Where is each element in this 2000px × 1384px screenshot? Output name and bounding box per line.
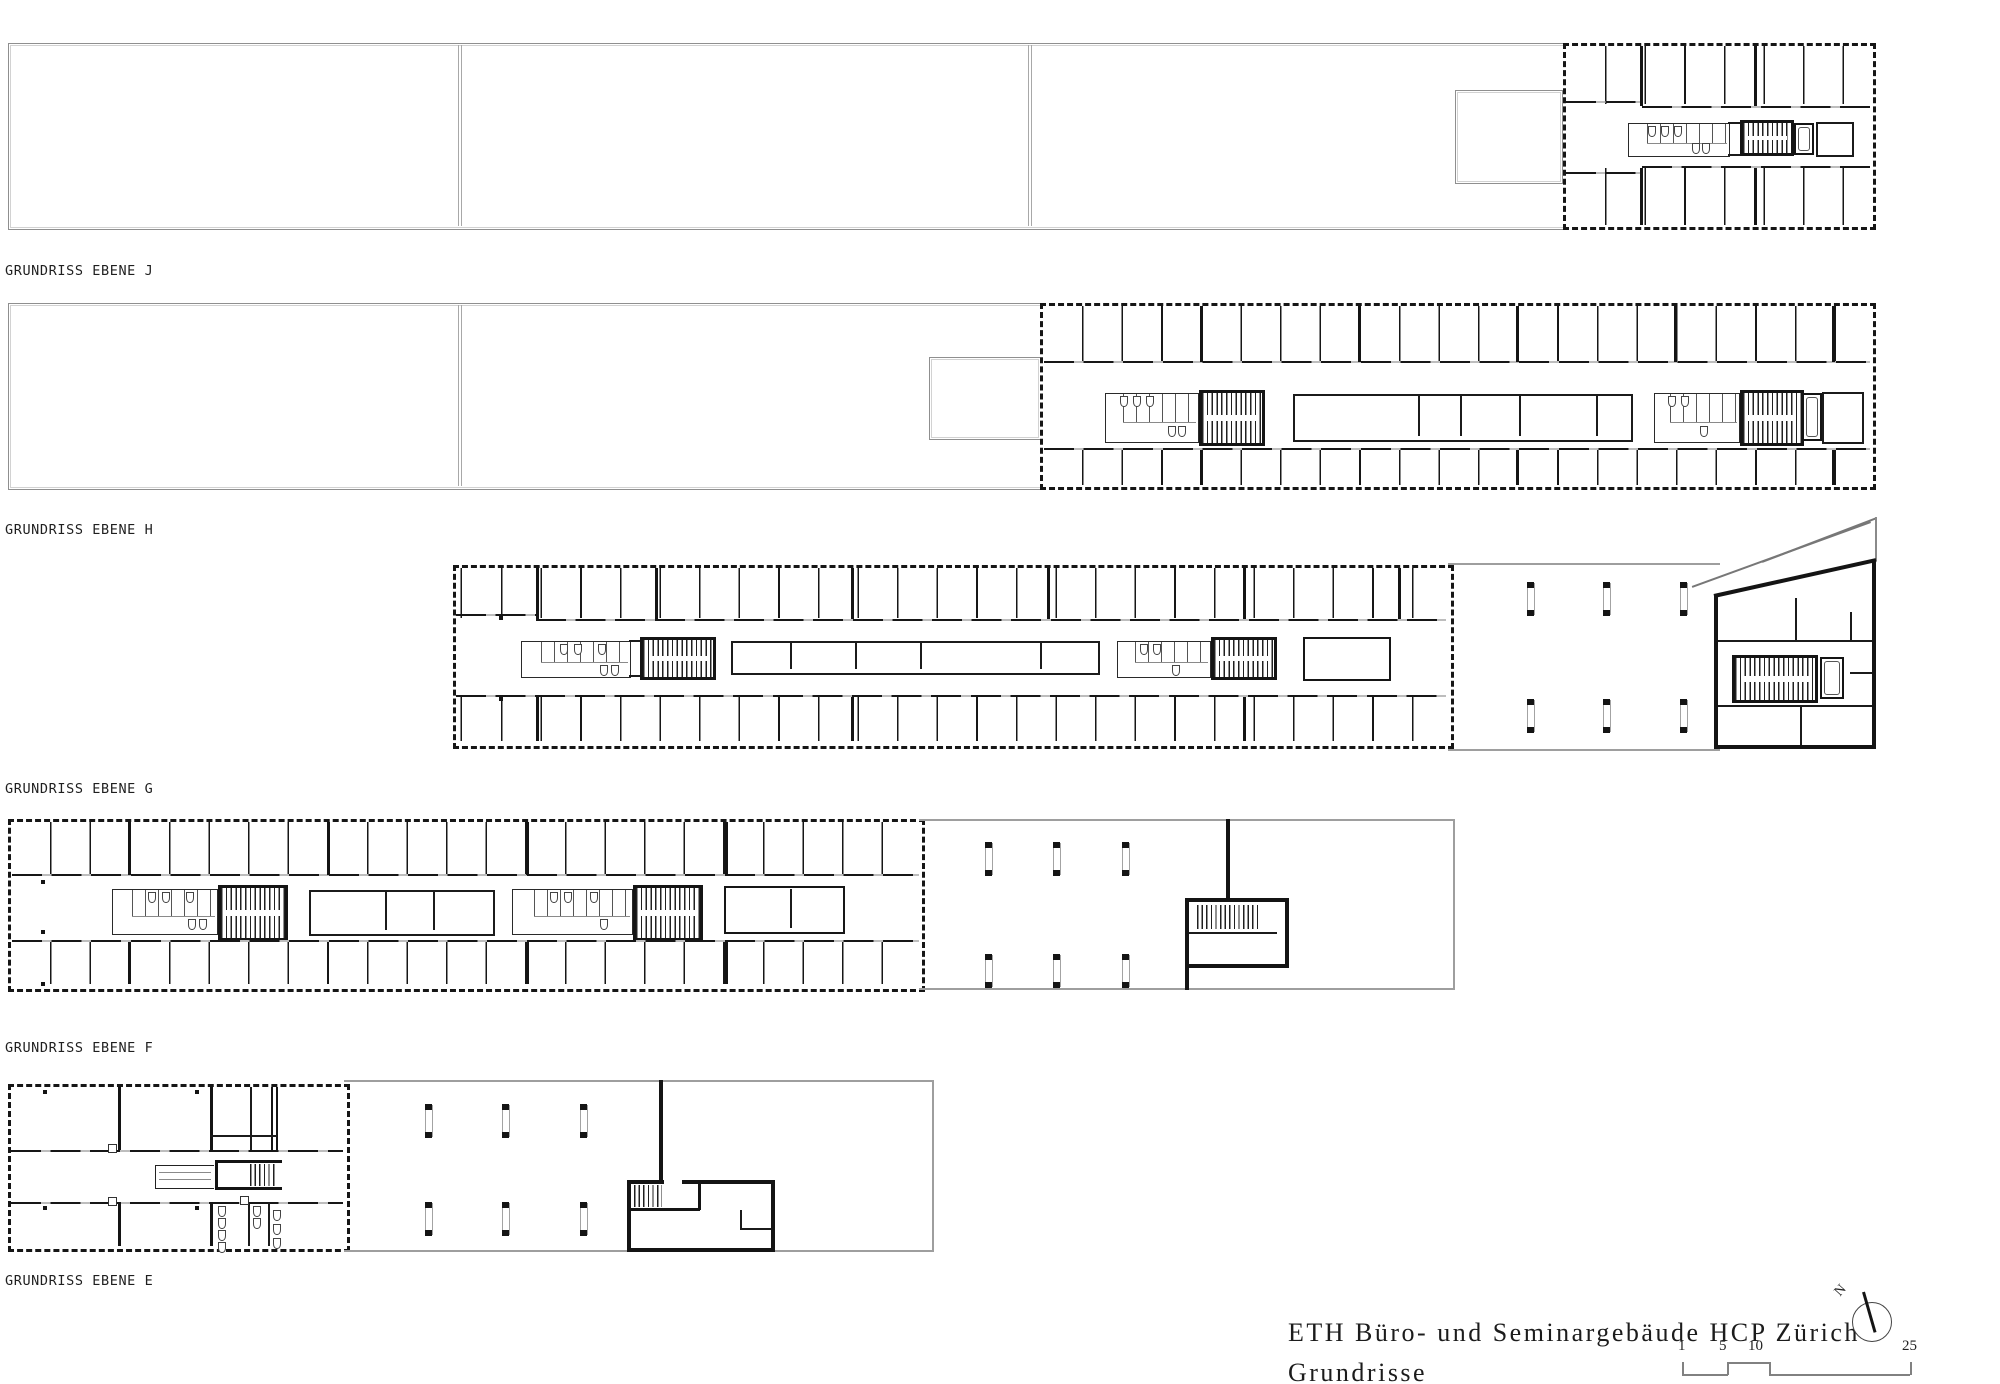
toilet-fixture xyxy=(1681,396,1689,407)
sink-fixture xyxy=(1168,426,1176,437)
wall-segment xyxy=(526,942,529,984)
partition-wall xyxy=(248,1202,250,1246)
partition-wall xyxy=(1596,396,1598,436)
wc-stalls xyxy=(541,642,627,663)
outline-notch xyxy=(929,357,1041,440)
wc-core xyxy=(1117,641,1211,678)
head-block-bottom-wall xyxy=(1714,745,1876,749)
wall-segment xyxy=(118,1087,121,1150)
core-wall xyxy=(627,1180,775,1184)
core-stem-wall xyxy=(1185,958,1189,990)
column-dot xyxy=(41,880,45,884)
wall-segment xyxy=(1832,450,1835,485)
plan-label: GRUNDRISS EBENE F xyxy=(5,1040,153,1056)
sink-fixture xyxy=(1692,143,1700,154)
head-block-wall xyxy=(1718,705,1872,707)
core-wall xyxy=(698,1184,701,1210)
partition-wall xyxy=(1460,396,1462,436)
wall-segment xyxy=(526,822,529,875)
column-dot xyxy=(41,930,45,934)
column-tick xyxy=(425,1203,433,1235)
head-block-right-wall xyxy=(1872,560,1876,749)
core-stem-wall xyxy=(1226,819,1230,900)
column-tick xyxy=(1603,700,1611,732)
elevator xyxy=(1802,393,1822,441)
head-block-wall xyxy=(1795,598,1797,640)
wall-segment xyxy=(1674,306,1677,362)
stair-hatch xyxy=(250,1164,276,1186)
head-block-wall xyxy=(1850,612,1852,640)
office-room-band xyxy=(1044,450,1870,485)
sink-fixture xyxy=(1172,665,1180,676)
wall-segment xyxy=(1358,306,1361,362)
column-tick xyxy=(1053,955,1061,987)
meeting-room-strip xyxy=(309,890,495,936)
core-room xyxy=(1822,392,1864,444)
hall-edge xyxy=(932,1080,934,1251)
wc-stalls xyxy=(132,890,215,917)
wall-segment xyxy=(1398,568,1401,619)
sink-fixture xyxy=(600,665,608,676)
wall-segment xyxy=(1516,450,1519,485)
partition-wall xyxy=(920,643,922,669)
wc-core xyxy=(1654,393,1740,443)
office-room-band xyxy=(1567,168,1870,225)
sink-fixture xyxy=(611,665,619,676)
stair-hatch xyxy=(1197,905,1259,929)
wall-segment xyxy=(536,697,539,741)
sheet-title: Grundrisse xyxy=(1288,1358,1427,1384)
corridor-wall xyxy=(536,619,1446,621)
sink-fixture xyxy=(199,919,207,930)
wall-segment xyxy=(536,568,539,619)
scale-bar-tick xyxy=(1727,1362,1729,1375)
office-room-band xyxy=(12,822,919,875)
wall-segment xyxy=(1640,168,1643,225)
meeting-room-strip xyxy=(1293,394,1633,442)
column-dot xyxy=(499,697,503,701)
roof-outline xyxy=(1762,517,1876,562)
stair-core xyxy=(640,637,716,680)
stair-core xyxy=(633,885,703,941)
column-dot xyxy=(43,1206,47,1210)
wall-segment xyxy=(1640,46,1643,106)
toilet-fixture xyxy=(186,892,194,903)
toilet-fixture xyxy=(1120,396,1128,407)
column-tick xyxy=(985,843,993,875)
core-wall xyxy=(771,1180,775,1252)
wc-core xyxy=(512,889,633,935)
north-label: N xyxy=(1832,1282,1851,1300)
scale-label-1: 1 xyxy=(1678,1338,1686,1355)
plan-sheet: GRUNDRISS EBENE J xyxy=(0,0,2000,1384)
wall-segment xyxy=(851,697,854,741)
toilet-fixture xyxy=(273,1210,281,1221)
partition-wall xyxy=(433,892,435,930)
column-tick xyxy=(1680,583,1688,615)
toilet-fixture xyxy=(218,1230,226,1241)
wall-segment xyxy=(1047,568,1050,619)
wall-segment xyxy=(1754,168,1757,225)
toilet-fixture xyxy=(1133,396,1141,407)
wall-segment xyxy=(128,942,131,984)
core-wall xyxy=(1189,932,1277,934)
corridor-wall xyxy=(11,1202,343,1204)
wall-segment xyxy=(210,1087,213,1150)
column-dot xyxy=(41,982,45,986)
scale-label-25: 25 xyxy=(1902,1338,1917,1355)
corridor-wall xyxy=(11,1150,343,1152)
toilet-fixture xyxy=(1140,644,1148,655)
head-block-wall xyxy=(1850,672,1872,674)
column-tick xyxy=(502,1203,510,1235)
door-symbol xyxy=(240,1196,249,1205)
wall-segment xyxy=(1754,46,1757,106)
column-dot xyxy=(195,1090,199,1094)
sink-fixture xyxy=(1700,426,1708,437)
column-tick xyxy=(1053,843,1061,875)
toilet-fixture xyxy=(1668,396,1676,407)
wall-segment xyxy=(1200,450,1203,485)
stair-core xyxy=(1199,390,1265,446)
corridor-wall xyxy=(1642,106,1870,108)
scale-label-5: 5 xyxy=(1719,1338,1727,1355)
stair-core xyxy=(1211,637,1277,680)
scale-bar-tick xyxy=(1910,1362,1912,1375)
fire-stair-core xyxy=(1185,898,1289,968)
sink-fixture xyxy=(253,1218,261,1229)
partition-wall xyxy=(1519,396,1521,436)
hall-edge xyxy=(344,1080,934,1082)
column-tick xyxy=(425,1105,433,1137)
wall-segment xyxy=(1243,697,1246,741)
wall-segment xyxy=(1832,306,1835,362)
wall-segment xyxy=(851,568,854,619)
roof-outline xyxy=(1875,517,1877,561)
wall-segment xyxy=(1200,306,1203,362)
sink-fixture xyxy=(253,1206,261,1217)
column-dot xyxy=(195,1206,199,1210)
plan-label: GRUNDRISS EBENE E xyxy=(5,1273,153,1289)
meeting-room-strip xyxy=(731,641,1100,675)
core-room xyxy=(724,886,845,934)
head-block-top-wall xyxy=(1714,558,1877,598)
toilet-fixture xyxy=(550,892,558,903)
wall-segment xyxy=(655,568,658,619)
partition-wall xyxy=(1040,643,1042,669)
sink-fixture xyxy=(1178,426,1186,437)
core-wall xyxy=(631,1208,700,1211)
lobby-wall xyxy=(1728,154,1740,156)
toilet-fixture xyxy=(273,1224,281,1235)
toilet-fixture xyxy=(574,644,582,655)
wall-segment xyxy=(1516,306,1519,362)
sink-fixture xyxy=(1702,143,1710,154)
head-block-wall xyxy=(1800,705,1802,745)
sink-fixture xyxy=(188,919,196,930)
corridor-wall xyxy=(1566,101,1642,103)
partition-wall xyxy=(790,643,792,669)
column-tick xyxy=(580,1105,588,1137)
core-room xyxy=(1303,637,1391,681)
wall-segment xyxy=(210,1202,213,1246)
office-room-band xyxy=(457,697,1448,741)
project-title: ETH Büro- und Seminargebäude HCP Zürich xyxy=(1288,1318,1860,1348)
column-tick xyxy=(1680,700,1688,732)
hall-edge xyxy=(1448,749,1720,751)
ramp xyxy=(155,1165,214,1189)
plan-label: GRUNDRISS EBENE H xyxy=(5,522,153,538)
elevator xyxy=(1820,657,1844,699)
partition-wall xyxy=(250,1087,252,1150)
outline-divider xyxy=(458,45,462,226)
toilet-fixture xyxy=(162,892,170,903)
shaft-wall xyxy=(271,1087,273,1150)
core-wall-gap xyxy=(664,1180,682,1184)
wall-segment xyxy=(725,822,728,875)
ramp-line xyxy=(159,1179,211,1180)
wall-segment xyxy=(118,1202,121,1246)
partition-wall xyxy=(268,1202,270,1246)
partition-wall xyxy=(790,889,792,928)
stair-core xyxy=(1732,655,1818,703)
core-wall xyxy=(627,1248,775,1252)
head-block-wall xyxy=(1718,640,1872,642)
wall-segment xyxy=(1243,568,1246,619)
toilet-fixture xyxy=(1674,126,1682,137)
core-wall xyxy=(740,1228,771,1230)
wall-segment xyxy=(128,822,131,875)
column-dot xyxy=(43,1090,47,1094)
column-dot xyxy=(499,616,503,620)
toilet-fixture xyxy=(564,892,572,903)
core-wall xyxy=(740,1210,742,1230)
partition-wall xyxy=(210,1135,277,1137)
wall-segment xyxy=(327,822,330,875)
toilet-fixture xyxy=(1146,396,1154,407)
stair-wall xyxy=(215,1160,218,1190)
office-room-band xyxy=(1567,46,1870,104)
column-tick xyxy=(502,1105,510,1137)
column-tick xyxy=(1603,583,1611,615)
plan-label: GRUNDRISS EBENE J xyxy=(5,263,153,279)
column-tick xyxy=(1527,700,1535,732)
column-tick xyxy=(1527,583,1535,615)
hall-edge xyxy=(1453,819,1455,989)
corridor-wall xyxy=(456,614,536,616)
office-room-band xyxy=(12,942,919,984)
office-room-band xyxy=(457,568,1448,618)
partition-wall xyxy=(385,892,387,930)
stair-core xyxy=(1740,120,1794,156)
outline-notch xyxy=(1455,90,1563,184)
toilet-fixture xyxy=(598,644,606,655)
column-tick xyxy=(1122,955,1130,987)
toilet-fixture xyxy=(273,1238,281,1249)
scale-label-10: 10 xyxy=(1748,1338,1763,1355)
stair-core xyxy=(218,885,288,941)
scale-bar-line xyxy=(1682,1374,1728,1376)
core-room xyxy=(1816,122,1854,157)
elevator xyxy=(1794,123,1814,155)
lobby-wall xyxy=(1728,122,1740,124)
scale-bar-line xyxy=(1727,1362,1769,1364)
shaft-wall xyxy=(276,1087,278,1150)
corridor-wall xyxy=(12,874,919,876)
ramp-line xyxy=(159,1172,211,1173)
column-tick xyxy=(1122,843,1130,875)
building-outline xyxy=(8,303,1043,490)
plan-label: GRUNDRISS EBENE G xyxy=(5,781,153,797)
wc-stalls xyxy=(534,890,629,917)
stair-wall xyxy=(215,1160,282,1163)
stair-hatch xyxy=(634,1185,662,1207)
wc-stalls xyxy=(1647,124,1727,144)
toilet-fixture xyxy=(590,892,598,903)
hall-edge xyxy=(1448,563,1720,565)
toilet-fixture xyxy=(218,1242,226,1253)
door-symbol xyxy=(108,1144,117,1153)
sink-fixture xyxy=(600,919,608,930)
toilet-fixture xyxy=(218,1218,226,1229)
column-tick xyxy=(580,1203,588,1235)
wall-segment xyxy=(725,942,728,984)
toilet-fixture xyxy=(218,1206,226,1217)
office-room-band xyxy=(1044,306,1870,362)
toilet-fixture xyxy=(1153,644,1161,655)
outline-divider xyxy=(1028,45,1032,226)
head-block-left-wall xyxy=(1714,596,1718,749)
core-stem-wall xyxy=(659,1080,663,1180)
partition-wall xyxy=(855,643,857,669)
stair-wall xyxy=(215,1187,282,1190)
toilet-fixture xyxy=(560,644,568,655)
column-tick xyxy=(985,955,993,987)
scale-bar-line xyxy=(1769,1374,1910,1376)
toilet-fixture xyxy=(1661,126,1669,137)
core-wall xyxy=(627,1180,631,1252)
partition-wall xyxy=(1418,396,1420,436)
door-symbol xyxy=(108,1197,117,1206)
outline-divider xyxy=(458,305,462,486)
corridor-wall xyxy=(1044,361,1870,363)
toilet-fixture xyxy=(1648,126,1656,137)
hall-edge xyxy=(919,819,1455,821)
stair-core xyxy=(1740,390,1804,446)
toilet-fixture xyxy=(148,892,156,903)
